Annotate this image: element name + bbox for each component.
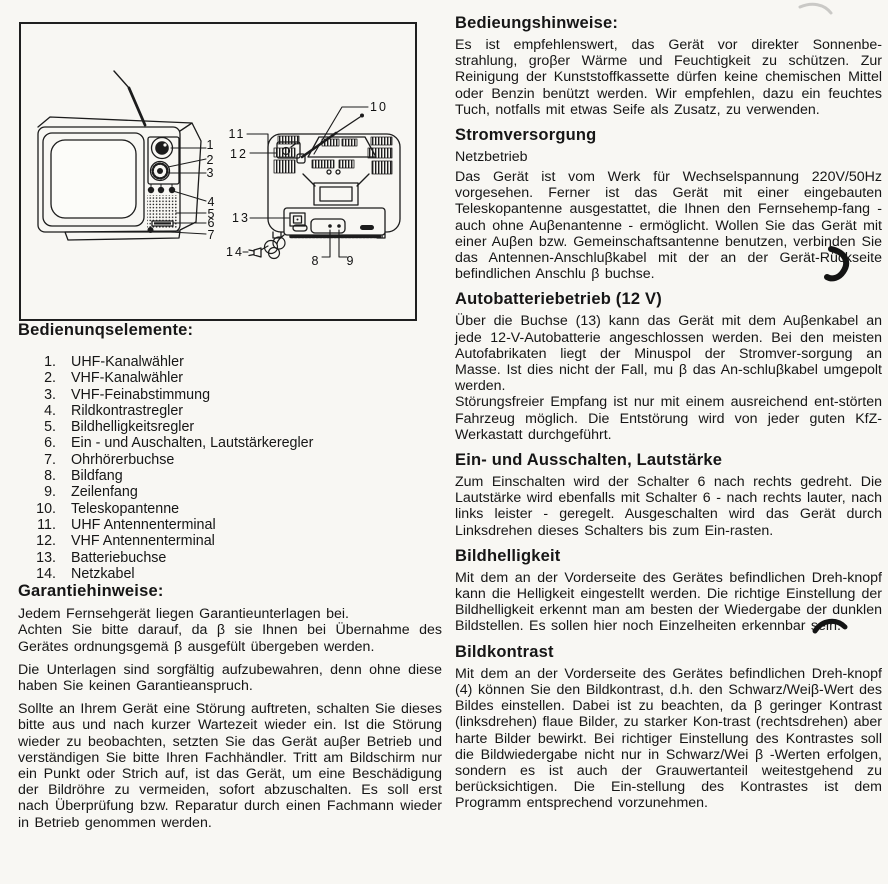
- warranty-paragraph: Die Unterlagen sind sorgfältig aufzubewa…: [18, 662, 442, 694]
- list-item: 5.Bildhelligkeitsregler: [18, 419, 442, 435]
- list-item-number: 3.: [18, 387, 56, 403]
- list-item-label: Zeilenfang: [71, 484, 138, 500]
- list-item-number: 10.: [18, 501, 56, 517]
- section-power-supply: Stromversorgung Netzbetrieb Das Gerät is…: [455, 126, 882, 282]
- list-item-label: VHF-Feinabstimmung: [71, 387, 210, 403]
- manual-page: 1 2 3 4 5 6 7 8 9 10 11 12 13 14 Bedienu…: [0, 0, 888, 884]
- callout-6: 6: [208, 218, 217, 228]
- warranty-paragraph: Sollte an Ihrem Gerät eine Störung auftr…: [18, 701, 442, 831]
- callout-4: 4: [208, 197, 217, 207]
- section-subheading: Netzbetrieb: [455, 149, 882, 165]
- list-item: 11.UHF Antennenterminal: [18, 517, 442, 533]
- list-item-number: 4.: [18, 403, 56, 419]
- callout-2: 2: [207, 155, 216, 165]
- callout-12: 12: [230, 149, 248, 159]
- list-item: 13.Batteriebuchse: [18, 550, 442, 566]
- left-column: 1 2 3 4 5 6 7 8 9 10 11 12 13 14 Bedienu…: [18, 0, 442, 838]
- list-item-number: 9.: [18, 484, 56, 500]
- list-item-number: 5.: [18, 419, 56, 435]
- section-heading: Bildkontrast: [455, 643, 882, 662]
- list-item-label: Teleskopantenne: [71, 501, 179, 517]
- list-item-number: 6.: [18, 435, 56, 451]
- list-item-label: Ohrhörerbuchse: [71, 452, 174, 468]
- list-item: 14.Netzkabel: [18, 566, 442, 582]
- list-item-label: VHF Antennenterminal: [71, 533, 215, 549]
- warranty-heading: Garantiehinweise:: [18, 582, 442, 601]
- section-heading: Bildhelligkeit: [455, 547, 882, 566]
- list-item: 12.VHF Antennenterminal: [18, 533, 442, 549]
- section-handling-notes: Bedieungshinweise: Es ist empfehlenswert…: [455, 14, 882, 118]
- list-item-label: Bildfang: [71, 468, 123, 484]
- section-heading: Bedieungshinweise:: [455, 14, 882, 33]
- controls-list: 1.UHF-Kanalwähler 2.VHF-Kanalwähler 3.VH…: [18, 354, 442, 582]
- callout-3: 3: [207, 168, 216, 178]
- list-item-label: Batteriebuchse: [71, 550, 166, 566]
- section-paragraph: Zum Einschalten wird der Schalter 6 nach…: [455, 474, 882, 539]
- list-item-number: 14.: [18, 566, 56, 582]
- section-car-battery: Autobatteriebetrieb (12 V) Über die Buch…: [455, 290, 882, 443]
- callout-10: 10: [370, 102, 388, 112]
- list-item-label: Netzkabel: [71, 566, 135, 582]
- section-paragraph: Über die Buchse (13) kann das Gerät mit …: [455, 313, 882, 394]
- list-item: 9.Zeilenfang: [18, 484, 442, 500]
- list-item-label: Ein - und Auschalten, Lautstärkeregler: [71, 435, 313, 451]
- list-item-number: 8.: [18, 468, 56, 484]
- list-item-label: Rildkontrastregler: [71, 403, 183, 419]
- controls-heading: Bedienunqselemente:: [18, 321, 442, 340]
- list-item: 1.UHF-Kanalwähler: [18, 354, 442, 370]
- list-item: 4.Rildkontrastregler: [18, 403, 442, 419]
- list-item-label: VHF-Kanalwähler: [71, 370, 183, 386]
- section-paragraph: Mit dem an der Vorderseite des Gerätes b…: [455, 666, 882, 812]
- section-on-off-volume: Ein- und Ausschalten, Lautstärke Zum Ein…: [455, 451, 882, 539]
- callout-7: 7: [208, 230, 217, 240]
- list-item: 3.VHF-Feinabstimmung: [18, 387, 442, 403]
- list-item-number: 12.: [18, 533, 56, 549]
- tv-diagram: 1 2 3 4 5 6 7 8 9 10 11 12 13 14: [19, 22, 417, 321]
- list-item: 6.Ein - und Auschalten, Lautstärkeregler: [18, 435, 442, 451]
- section-heading: Ein- und Ausschalten, Lautstärke: [455, 451, 882, 470]
- list-item: 2.VHF-Kanalwähler: [18, 370, 442, 386]
- warranty-paragraph: Achten Sie bitte darauf, da β sie Ihnen …: [18, 622, 442, 654]
- callout-14: 14: [226, 247, 244, 257]
- callout-9: 9: [347, 256, 356, 266]
- list-item: 10.Teleskopantenne: [18, 501, 442, 517]
- list-item-number: 1.: [18, 354, 56, 370]
- tv-line-art-illustration: [21, 24, 415, 319]
- list-item-number: 13.: [18, 550, 56, 566]
- list-item-number: 7.: [18, 452, 56, 468]
- right-column: Bedieungshinweise: Es ist empfehlenswert…: [455, 10, 882, 819]
- callout-1: 1: [207, 140, 216, 150]
- section-contrast: Bildkontrast Mit dem an der Vorderseite …: [455, 643, 882, 812]
- list-item-label: Bildhelligkeitsregler: [71, 419, 194, 435]
- list-item: 7.Ohrhörerbuchse: [18, 452, 442, 468]
- section-paragraph: Das Gerät ist vom Werk für Wechselspannu…: [455, 169, 882, 282]
- list-item-label: UHF-Kanalwähler: [71, 354, 184, 370]
- callout-13: 13: [232, 213, 250, 223]
- list-item-number: 11.: [18, 517, 56, 533]
- section-heading: Stromversorgung: [455, 126, 882, 145]
- list-item-number: 2.: [18, 370, 56, 386]
- section-paragraph: Es ist empfehlenswert, das Gerät vor dir…: [455, 37, 882, 118]
- list-item-label: UHF Antennenterminal: [71, 517, 216, 533]
- section-paragraph: Mit dem an der Vorderseite des Gerätes b…: [455, 570, 882, 635]
- section-paragraph: Störungsfreier Empfang ist nur mit einem…: [455, 394, 882, 443]
- callout-8: 8: [312, 256, 321, 266]
- callout-11: 11: [229, 129, 246, 139]
- section-heading: Autobatteriebetrieb (12 V): [455, 290, 882, 309]
- list-item: 8.Bildfang: [18, 468, 442, 484]
- section-brightness: Bildhelligkeit Mit dem an der Vorderseit…: [455, 547, 882, 635]
- warranty-paragraph: Jedem Fernsehgerät liegen Garantieunterl…: [18, 606, 442, 622]
